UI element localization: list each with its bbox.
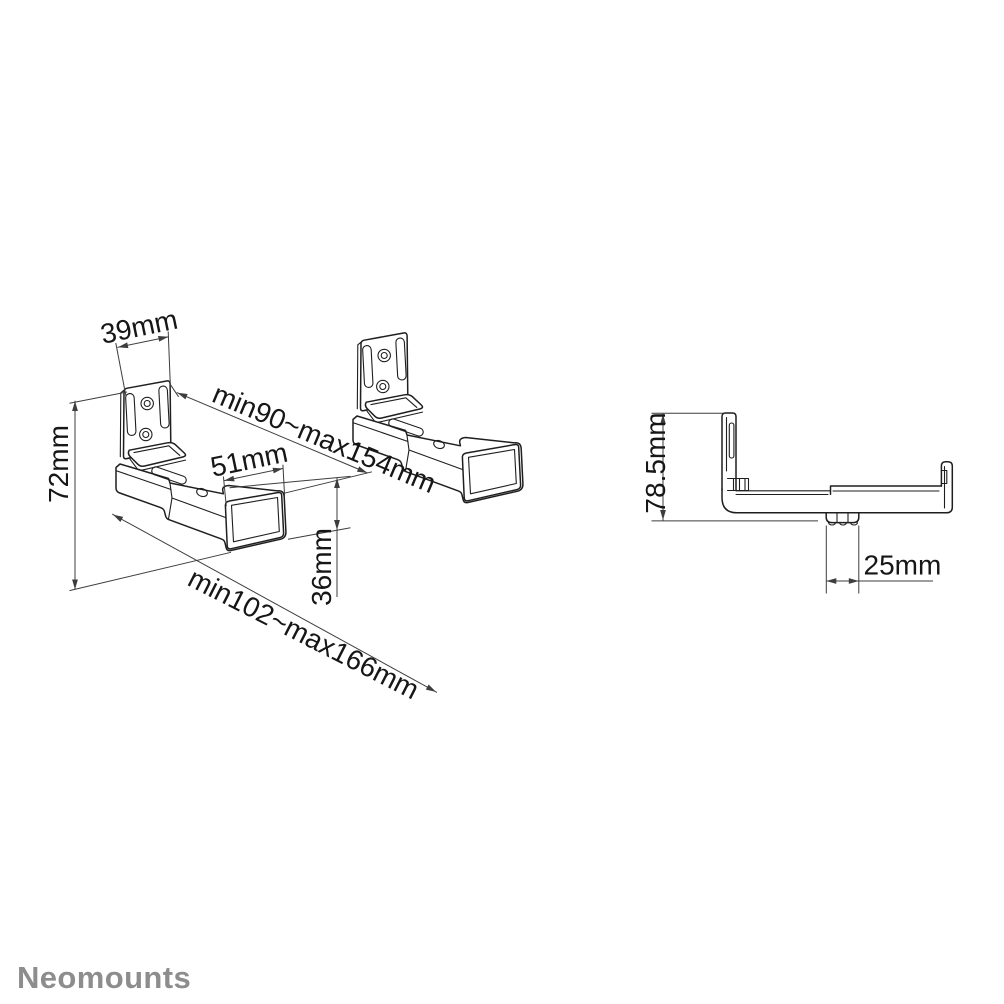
dim-78-5mm-label: 78.5mm [640, 412, 671, 513]
side-view [722, 413, 952, 525]
technical-drawing-page: 39mm 72mm min90~max154mm 51mm 36mm [0, 0, 1004, 1004]
dim-knob-offset-25mm: 25mm [826, 526, 941, 594]
brand-wordmark: Neomounts [17, 960, 191, 995]
dim-25mm-label: 25mm [864, 550, 942, 581]
dim-72mm-label: 72mm [43, 425, 74, 503]
technical-drawing: 39mm 72mm min90~max154mm 51mm 36mm [0, 0, 1004, 1004]
dim-min102-max166-label: min102~max166mm [183, 562, 424, 705]
dim-36mm-label: 36mm [306, 528, 337, 606]
